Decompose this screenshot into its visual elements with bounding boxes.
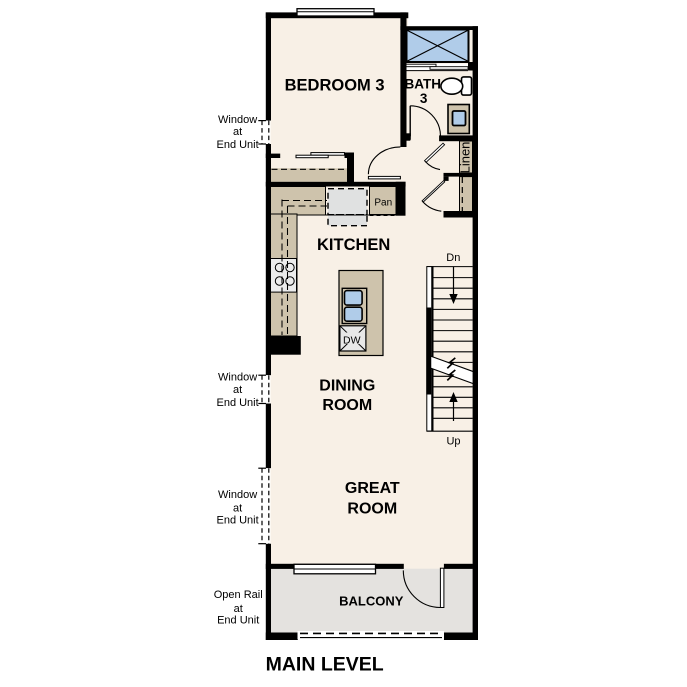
svg-text:Window: Window — [218, 372, 257, 384]
svg-text:End Unit: End Unit — [216, 397, 258, 409]
svg-text:BEDROOM 3: BEDROOM 3 — [285, 77, 385, 95]
svg-text:DW: DW — [343, 334, 361, 346]
svg-text:Window: Window — [218, 114, 257, 126]
svg-text:End Unit: End Unit — [216, 139, 258, 151]
svg-text:End Unit: End Unit — [217, 615, 259, 627]
svg-text:Linen: Linen — [457, 142, 472, 174]
svg-text:MAIN LEVEL: MAIN LEVEL — [266, 653, 384, 675]
svg-text:at: at — [233, 384, 242, 396]
svg-text:Dn: Dn — [446, 252, 460, 264]
svg-text:Pan: Pan — [374, 198, 392, 209]
svg-text:End Unit: End Unit — [216, 515, 258, 527]
svg-text:3: 3 — [420, 91, 428, 106]
svg-text:Up: Up — [446, 436, 460, 448]
svg-text:GREAT: GREAT — [345, 480, 400, 497]
svg-text:Window: Window — [218, 489, 257, 501]
svg-text:at: at — [233, 502, 242, 514]
svg-text:Open Rail: Open Rail — [214, 589, 263, 601]
svg-text:BATH: BATH — [405, 77, 442, 92]
svg-text:ROOM: ROOM — [322, 397, 372, 414]
svg-text:BALCONY: BALCONY — [339, 593, 404, 608]
svg-text:at: at — [233, 126, 242, 138]
svg-text:KITCHEN: KITCHEN — [317, 236, 390, 254]
svg-text:ROOM: ROOM — [347, 500, 397, 517]
svg-text:DINING: DINING — [319, 377, 375, 394]
svg-text:at: at — [234, 603, 243, 615]
